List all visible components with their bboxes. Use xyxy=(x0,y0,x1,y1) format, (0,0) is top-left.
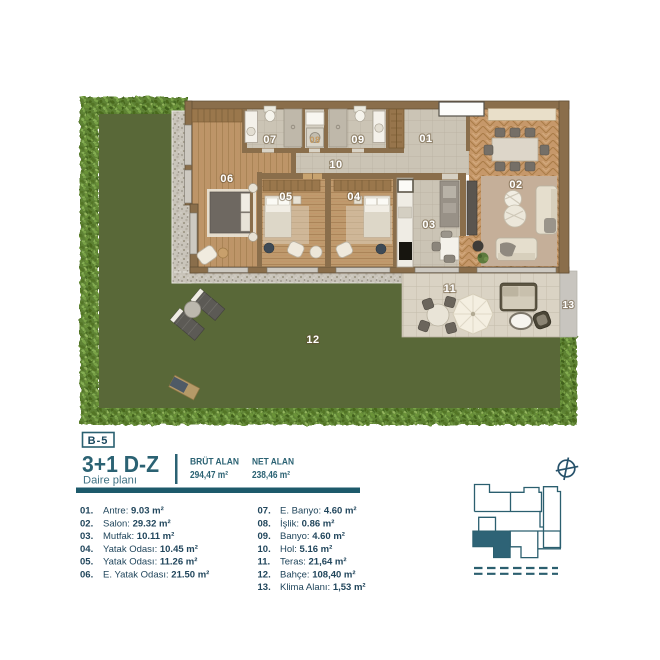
svg-text:Antre: 9.03 m²: Antre: 9.03 m² xyxy=(103,506,164,517)
svg-text:B-5: B-5 xyxy=(88,435,109,447)
svg-text:09.: 09. xyxy=(258,531,271,542)
svg-text:02: 02 xyxy=(509,179,522,191)
svg-text:Klima Alanı: 1,53 m²: Klima Alanı: 1,53 m² xyxy=(280,582,366,593)
svg-text:03.: 03. xyxy=(80,531,93,542)
svg-text:01.: 01. xyxy=(80,506,93,517)
svg-text:Salon: 29.32 m²: Salon: 29.32 m² xyxy=(103,518,171,529)
svg-text:11: 11 xyxy=(444,283,457,295)
svg-text:06: 06 xyxy=(220,173,233,185)
svg-text:12: 12 xyxy=(306,334,319,346)
svg-text:Hol: 5.16 m²: Hol: 5.16 m² xyxy=(280,544,332,555)
svg-text:11.: 11. xyxy=(258,557,271,568)
svg-text:İşlik: 0.86 m²: İşlik: 0.86 m² xyxy=(280,518,334,529)
svg-text:Bahçe: 108,40 m²: Bahçe: 108,40 m² xyxy=(280,569,356,580)
svg-text:Banyo: 4.60 m²: Banyo: 4.60 m² xyxy=(280,531,345,542)
svg-text:03: 03 xyxy=(422,219,435,231)
svg-text:08.: 08. xyxy=(258,518,271,529)
svg-text:02.: 02. xyxy=(80,518,93,529)
svg-text:13.: 13. xyxy=(258,582,271,593)
svg-text:BRÜT ALAN: BRÜT ALAN xyxy=(190,457,239,468)
svg-text:06.: 06. xyxy=(80,569,93,580)
svg-text:Teras: 21,64 m²: Teras: 21,64 m² xyxy=(280,557,347,568)
svg-text:E. Yatak Odası: 21.50 m²: E. Yatak Odası: 21.50 m² xyxy=(103,569,209,580)
svg-text:04: 04 xyxy=(347,191,361,203)
svg-text:Yatak Odası: 10.45 m²: Yatak Odası: 10.45 m² xyxy=(103,544,198,555)
svg-text:10: 10 xyxy=(329,159,342,171)
svg-text:Yatak Odası: 11.26 m²: Yatak Odası: 11.26 m² xyxy=(103,557,197,568)
svg-text:238,46 m²: 238,46 m² xyxy=(252,469,290,481)
svg-text:01: 01 xyxy=(419,133,432,145)
svg-text:04.: 04. xyxy=(80,544,93,555)
svg-text:294,47 m²: 294,47 m² xyxy=(190,469,228,481)
svg-text:05.: 05. xyxy=(80,557,93,568)
svg-text:07: 07 xyxy=(263,134,276,146)
svg-text:07.: 07. xyxy=(258,506,271,517)
svg-text:05: 05 xyxy=(279,191,292,203)
svg-text:Daire planı: Daire planı xyxy=(83,475,137,487)
svg-text:Mutfak: 10.11 m²: Mutfak: 10.11 m² xyxy=(103,531,174,542)
svg-text:12.: 12. xyxy=(258,569,271,580)
svg-text:10.: 10. xyxy=(258,544,271,555)
svg-text:09: 09 xyxy=(351,134,364,146)
svg-text:E. Banyo: 4.60 m²: E. Banyo: 4.60 m² xyxy=(280,506,357,517)
svg-text:3+1 D-Z: 3+1 D-Z xyxy=(82,451,159,477)
svg-text:08: 08 xyxy=(309,135,320,145)
svg-text:NET ALAN: NET ALAN xyxy=(252,457,294,468)
svg-text:13: 13 xyxy=(562,300,574,311)
